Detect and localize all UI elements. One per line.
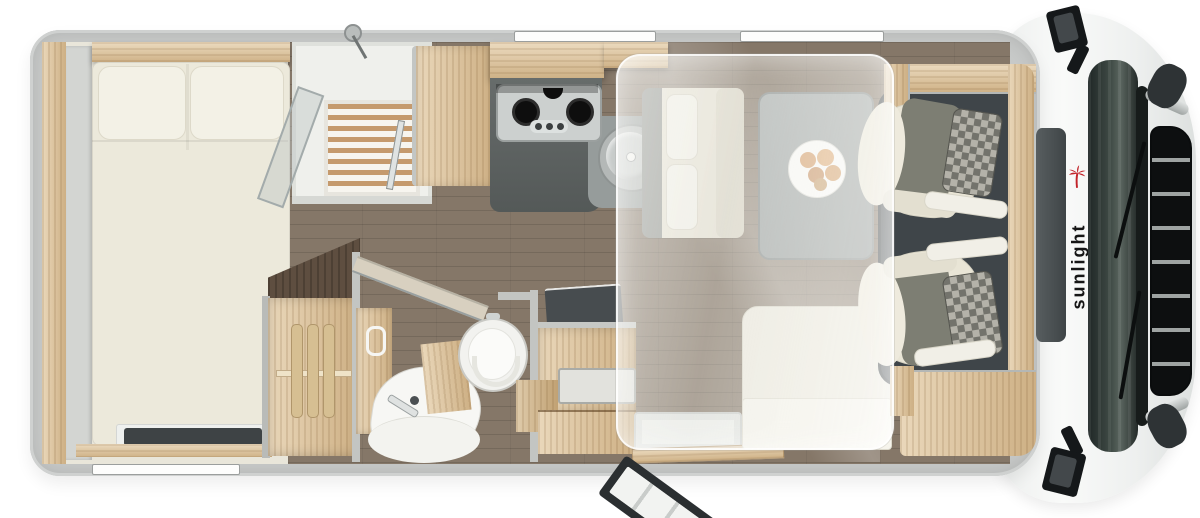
hob-knob-2 xyxy=(546,123,553,130)
window-strip-top-1 xyxy=(514,31,656,42)
bathroom-wall-right xyxy=(530,290,538,462)
palm-tree-icon xyxy=(1064,164,1090,190)
cab-counter-bottom xyxy=(900,370,1036,456)
floorplan-canvas: sunlight xyxy=(0,0,1200,518)
hanger-icon-2 xyxy=(307,324,319,418)
blanket-fold xyxy=(186,64,189,150)
overhead-locker-bedroom xyxy=(92,42,290,62)
hob-knob-1 xyxy=(535,123,542,130)
pillow-left xyxy=(98,66,186,140)
headboard-shelf xyxy=(66,46,92,460)
overhead-locker-kitchen xyxy=(490,42,604,78)
washbasin-counter xyxy=(368,416,480,463)
bed-base-trim xyxy=(76,444,272,457)
bed-seam xyxy=(92,140,288,142)
side-mirror-bottom xyxy=(1042,420,1094,498)
basin-drain xyxy=(410,396,419,405)
tall-cabinet xyxy=(412,46,494,186)
side-mirror-top xyxy=(1050,4,1098,80)
shower-tray-edge xyxy=(292,196,432,204)
window-strip-bottom xyxy=(92,464,240,475)
front-grille xyxy=(1150,126,1192,396)
drop-down-bed-overlay xyxy=(616,54,894,450)
rear-wall-shelf xyxy=(42,42,66,464)
towel-ring-icon xyxy=(366,326,386,356)
bathroom-wall-stub xyxy=(498,292,538,300)
hob-knob-3 xyxy=(557,123,564,130)
shower-grate xyxy=(324,100,420,196)
pillow-right xyxy=(190,66,284,140)
toilet-button xyxy=(486,313,500,320)
hanger-icon-3 xyxy=(323,324,335,418)
hanger-icon-1 xyxy=(291,324,303,418)
burner-right xyxy=(566,98,594,126)
brand-text: sunlight xyxy=(1069,202,1090,332)
wiper-band xyxy=(1136,86,1148,426)
window-strip-top-2 xyxy=(740,31,884,42)
